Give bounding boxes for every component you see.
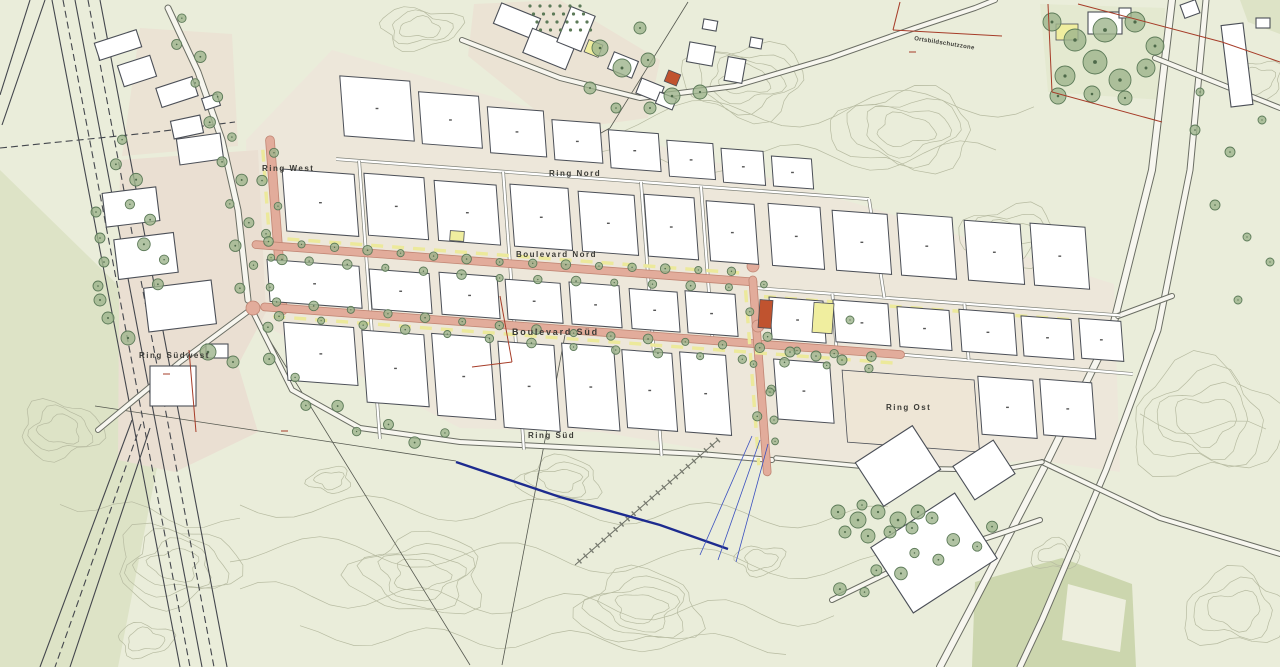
tree-center <box>599 47 602 50</box>
tree-center <box>698 269 699 270</box>
tree-center <box>598 265 599 266</box>
tree-center <box>728 287 729 288</box>
street-label: Ring West <box>262 164 314 173</box>
tree-center <box>129 204 130 205</box>
tree-center <box>767 336 768 337</box>
tree-center <box>135 179 137 181</box>
tree-center <box>294 377 295 378</box>
tree-center <box>657 352 659 354</box>
tree-center <box>321 320 322 321</box>
tree-center <box>784 362 786 364</box>
orchard-dot <box>572 12 575 15</box>
tree-center <box>621 67 624 70</box>
tree-center <box>489 338 490 339</box>
tree-center <box>253 265 254 266</box>
orchard-dot <box>578 4 581 7</box>
tree-center <box>1246 236 1247 237</box>
tree-center <box>269 287 270 288</box>
street-label: Ring Süd <box>528 431 575 440</box>
tree-center <box>664 268 666 270</box>
building-mark <box>1100 339 1103 340</box>
street-label: Ring Nord <box>549 169 601 178</box>
tree-center <box>127 337 129 339</box>
tree-center <box>462 321 463 322</box>
tree-center <box>143 243 145 245</box>
tree-center <box>239 287 241 289</box>
building-mark <box>394 368 397 369</box>
orchard-dot <box>568 4 571 7</box>
tree-center <box>864 591 865 592</box>
orchard-dot <box>559 28 562 31</box>
building <box>1256 18 1270 28</box>
tree-center <box>301 244 302 245</box>
tree-center <box>362 324 363 325</box>
tree-center <box>1154 45 1157 48</box>
tree-center <box>699 91 701 93</box>
tree-center <box>753 363 754 364</box>
tree-center <box>1194 129 1196 131</box>
orchard-dot <box>552 12 555 15</box>
orchard-dot <box>539 28 542 31</box>
street-label: Ring Ost <box>886 403 931 412</box>
tree-center <box>176 44 178 46</box>
building-mark <box>803 390 806 391</box>
tree-center <box>849 319 850 320</box>
tree-center <box>103 261 105 263</box>
building-mark <box>710 313 713 314</box>
tree-center <box>773 419 774 420</box>
tree-center <box>774 441 775 442</box>
red-building <box>758 300 773 329</box>
building-mark <box>1058 255 1061 256</box>
tree-center <box>1145 67 1148 70</box>
building <box>749 37 763 49</box>
tree-center <box>763 284 764 285</box>
tree-center <box>1261 119 1262 120</box>
tree-center <box>334 247 335 248</box>
tree-center <box>400 253 401 254</box>
building-mark <box>925 245 928 246</box>
tree-center <box>277 206 278 207</box>
tree-center <box>1133 20 1136 23</box>
tree-center <box>1063 74 1066 77</box>
tree-center <box>209 121 211 123</box>
building <box>686 42 715 66</box>
tree-center <box>889 531 891 533</box>
tree-center <box>1051 21 1054 24</box>
building-mark <box>516 131 519 132</box>
tree-center <box>261 180 263 182</box>
orchard-dot <box>589 28 592 31</box>
tree-center <box>826 365 827 366</box>
tree-center <box>308 260 309 261</box>
tree-center <box>232 361 234 363</box>
tree-center <box>1057 95 1060 98</box>
tree-center <box>367 249 369 251</box>
tree-center <box>877 511 879 513</box>
tree-center <box>414 442 416 444</box>
tree-center <box>466 258 468 260</box>
tree-center <box>690 285 692 287</box>
orchard-dot <box>532 12 535 15</box>
tree-center <box>1073 38 1077 42</box>
tree-center <box>121 139 122 140</box>
tree-center <box>815 355 817 357</box>
tree-center <box>1091 93 1094 96</box>
tree-center <box>273 152 274 153</box>
tree-center <box>1214 204 1216 206</box>
tree-center <box>423 271 424 272</box>
building-mark <box>795 236 798 237</box>
tree-center <box>875 569 877 571</box>
tree-center <box>917 511 919 513</box>
building-mark <box>319 202 322 203</box>
tree-center <box>107 317 109 319</box>
tree-center <box>350 309 351 310</box>
orchard-dot <box>555 20 558 23</box>
tree-center <box>861 504 863 506</box>
street-label: Boulevard Süd <box>512 327 599 337</box>
orchard-dot <box>549 28 552 31</box>
building-mark <box>648 390 651 391</box>
tree-center <box>871 356 873 358</box>
orchard-dot <box>528 4 531 7</box>
tree-center <box>281 259 283 261</box>
map-svg: Ring WestRing NordBoulevard NordBoulevar… <box>0 0 1280 667</box>
building-mark <box>923 328 926 329</box>
tree-center <box>1199 91 1200 92</box>
street-label: Ring Südwest <box>139 351 210 360</box>
building <box>702 19 718 31</box>
building-mark <box>449 119 452 120</box>
tree-center <box>305 405 307 407</box>
tree-center <box>952 539 954 541</box>
tree-center <box>265 233 266 234</box>
tree-center <box>647 338 649 340</box>
tree-center <box>444 432 445 433</box>
tree-center <box>756 416 757 417</box>
tree-center <box>742 359 743 360</box>
building-mark <box>704 393 707 394</box>
building-mark <box>1046 337 1049 338</box>
tree-center <box>639 27 641 29</box>
building-mark <box>313 283 316 284</box>
tree-center <box>181 18 182 19</box>
tree-center <box>248 222 250 224</box>
building-mark <box>594 304 597 305</box>
junction-node <box>246 301 260 315</box>
site-plan-map: Ring WestRing NordBoulevard NordBoulevar… <box>0 0 1280 667</box>
building-mark <box>987 332 990 333</box>
orchard-dot <box>538 4 541 7</box>
tree-center <box>1237 299 1238 300</box>
building-mark <box>731 232 734 233</box>
building-mark <box>395 206 398 207</box>
building-mark <box>653 310 656 311</box>
tree-center <box>163 259 164 260</box>
building-mark <box>690 159 693 160</box>
building-mark <box>376 108 379 109</box>
tree-center <box>499 277 500 278</box>
tree-center <box>115 163 117 165</box>
building-mark <box>399 291 402 292</box>
building-mark <box>993 252 996 253</box>
yellow-building <box>812 302 834 333</box>
tree-center <box>833 353 834 354</box>
tree-center <box>844 531 846 533</box>
tree-center <box>931 517 933 519</box>
tree-center <box>1229 151 1231 153</box>
orchard-dot <box>548 4 551 7</box>
building-mark <box>466 212 469 213</box>
tree-center <box>615 107 617 109</box>
tree-center <box>911 527 913 529</box>
tree-center <box>268 358 270 360</box>
building <box>150 366 196 406</box>
orchard-dot <box>565 20 568 23</box>
tree-center <box>531 342 533 344</box>
orchard-dot <box>575 20 578 23</box>
tree-center <box>231 136 232 137</box>
tree-center <box>759 347 761 349</box>
tree-center <box>99 237 101 239</box>
tree-center <box>841 359 843 361</box>
tree-center <box>1124 97 1126 99</box>
tree-center <box>789 351 791 353</box>
tree-center <box>914 552 915 553</box>
tree-center <box>499 261 500 262</box>
building-mark <box>528 386 531 387</box>
tree-center <box>649 107 651 109</box>
tree-center <box>424 317 426 319</box>
orchard-dot <box>585 20 588 23</box>
orchard-dot <box>569 28 572 31</box>
tree-center <box>99 299 101 301</box>
tree-center <box>221 161 223 163</box>
tree-center <box>194 82 195 83</box>
building-mark <box>540 217 543 218</box>
building-mark <box>860 242 863 243</box>
street-label: Boulevard Nord <box>516 250 597 259</box>
tree-center <box>1118 78 1122 82</box>
tree-center <box>157 283 159 285</box>
tree-center <box>433 255 434 256</box>
building <box>724 57 746 84</box>
tree-center <box>685 341 686 342</box>
tree-center <box>796 350 797 351</box>
tree-center <box>229 203 230 204</box>
orchard-dot <box>582 12 585 15</box>
building-mark <box>319 353 322 354</box>
tree-center <box>938 559 940 561</box>
tree-center <box>267 326 269 328</box>
tree-center <box>589 87 591 89</box>
tree-center <box>532 263 533 264</box>
tree-center <box>385 267 386 268</box>
orchard-dot <box>558 4 561 7</box>
tree-center <box>199 56 201 58</box>
orchard-dot <box>542 12 545 15</box>
building-mark <box>633 150 636 151</box>
building-mark <box>607 223 610 224</box>
building-mark <box>791 172 794 173</box>
tree-center <box>388 424 390 426</box>
tree-center <box>575 280 577 282</box>
building <box>176 133 223 165</box>
tree-center <box>404 329 406 331</box>
tree-center <box>700 356 701 357</box>
tree-center <box>95 211 97 213</box>
tree-center <box>537 279 538 280</box>
tree-center <box>565 264 567 266</box>
tree-center <box>149 219 151 221</box>
tree-center <box>647 59 649 61</box>
building-mark <box>533 301 536 302</box>
building-mark <box>576 141 579 142</box>
building-mark <box>742 166 745 167</box>
building-mark <box>861 322 864 323</box>
tree-center <box>270 257 271 258</box>
tree-center <box>278 315 280 317</box>
tree-center <box>976 546 977 547</box>
orchard-dot <box>545 20 548 23</box>
tree-center <box>97 285 99 287</box>
tree-center <box>234 245 236 247</box>
tree-center <box>1103 28 1107 32</box>
tree-center <box>749 311 750 312</box>
tree-center <box>461 274 463 276</box>
tree-center <box>867 535 869 537</box>
building-mark <box>670 226 673 227</box>
building-mark <box>589 386 592 387</box>
tree-center <box>313 305 315 307</box>
tree-center <box>614 282 615 283</box>
yellow-building <box>450 231 465 242</box>
tree-center <box>276 301 277 302</box>
tree-center <box>241 179 243 181</box>
tree-center <box>447 333 448 334</box>
tree-center <box>346 264 348 266</box>
building-mark <box>796 319 799 320</box>
tree-center <box>573 346 574 347</box>
tree-center <box>897 519 900 522</box>
tree-center <box>671 95 674 98</box>
building-mark <box>1066 408 1069 409</box>
building-mark <box>468 295 471 296</box>
orchard-dot <box>562 12 565 15</box>
tree-center <box>868 368 869 369</box>
orchard-dot <box>579 28 582 31</box>
tree-center <box>769 391 770 392</box>
tree-center <box>387 313 388 314</box>
tree-center <box>722 344 723 345</box>
tree-center <box>652 283 653 284</box>
tree-center <box>610 335 611 336</box>
building-mark <box>1006 407 1009 408</box>
orchard-dot <box>535 20 538 23</box>
tree-center <box>1093 60 1097 64</box>
tree-center <box>337 405 339 407</box>
tree-center <box>857 519 860 522</box>
tree-center <box>839 588 841 590</box>
tree-center <box>356 431 357 432</box>
tree-center <box>731 271 732 272</box>
tree-center <box>1269 261 1270 262</box>
tree-center <box>268 241 270 243</box>
tree-center <box>499 325 500 326</box>
tree-center <box>615 349 616 350</box>
building-mark <box>462 376 465 377</box>
tree-center <box>837 511 839 513</box>
tree-center <box>900 572 902 574</box>
tree-center <box>631 267 632 268</box>
tree-center <box>217 96 219 98</box>
tree-center <box>991 526 993 528</box>
